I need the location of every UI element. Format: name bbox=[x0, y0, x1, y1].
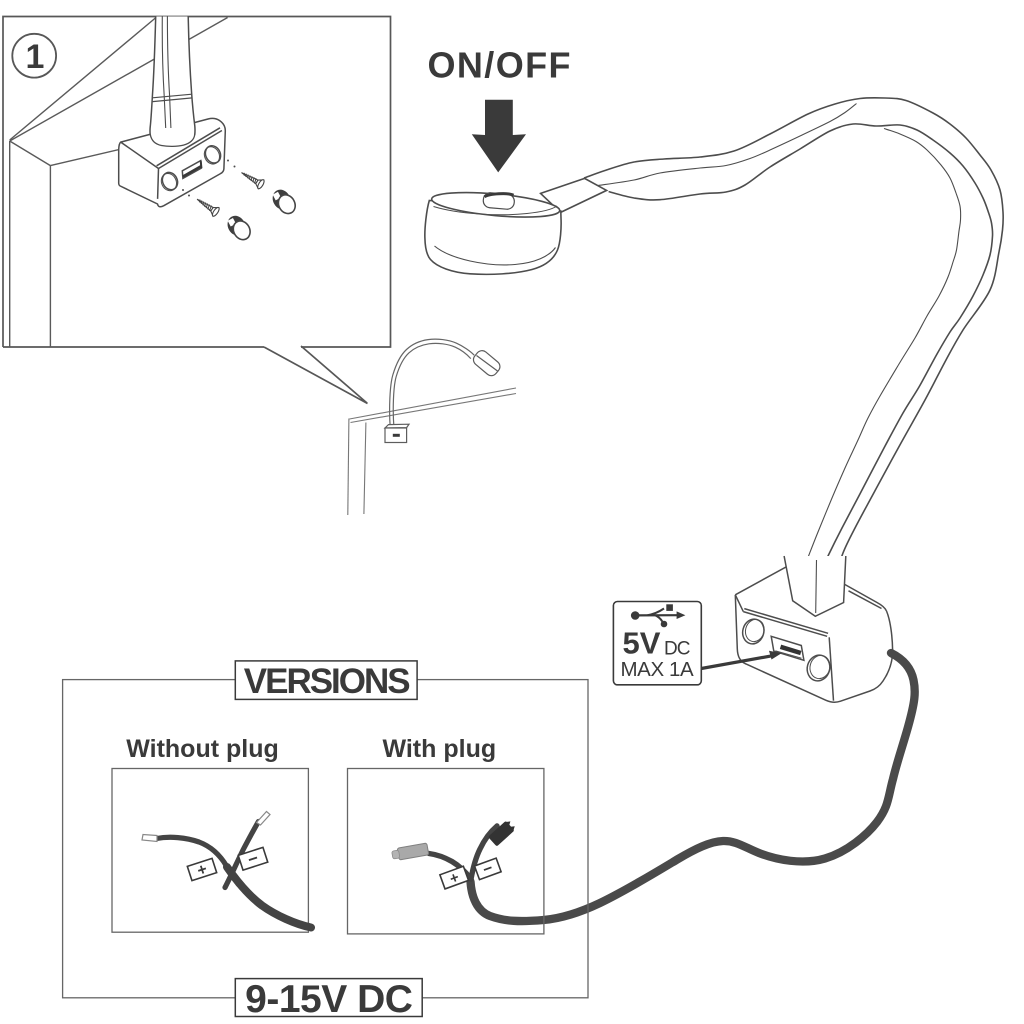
svg-text:With plug: With plug bbox=[382, 735, 496, 763]
svg-text:5V: 5V bbox=[623, 626, 661, 661]
svg-text:VERSIONS: VERSIONS bbox=[244, 662, 410, 701]
svg-text:MAX 1A: MAX 1A bbox=[621, 658, 695, 681]
svg-text:9-15V DC: 9-15V DC bbox=[245, 978, 413, 1021]
svg-text:DC: DC bbox=[664, 639, 690, 660]
svg-text:1: 1 bbox=[26, 38, 45, 76]
svg-text:Without plug: Without plug bbox=[126, 735, 279, 763]
svg-text:ON/OFF: ON/OFF bbox=[428, 45, 572, 86]
